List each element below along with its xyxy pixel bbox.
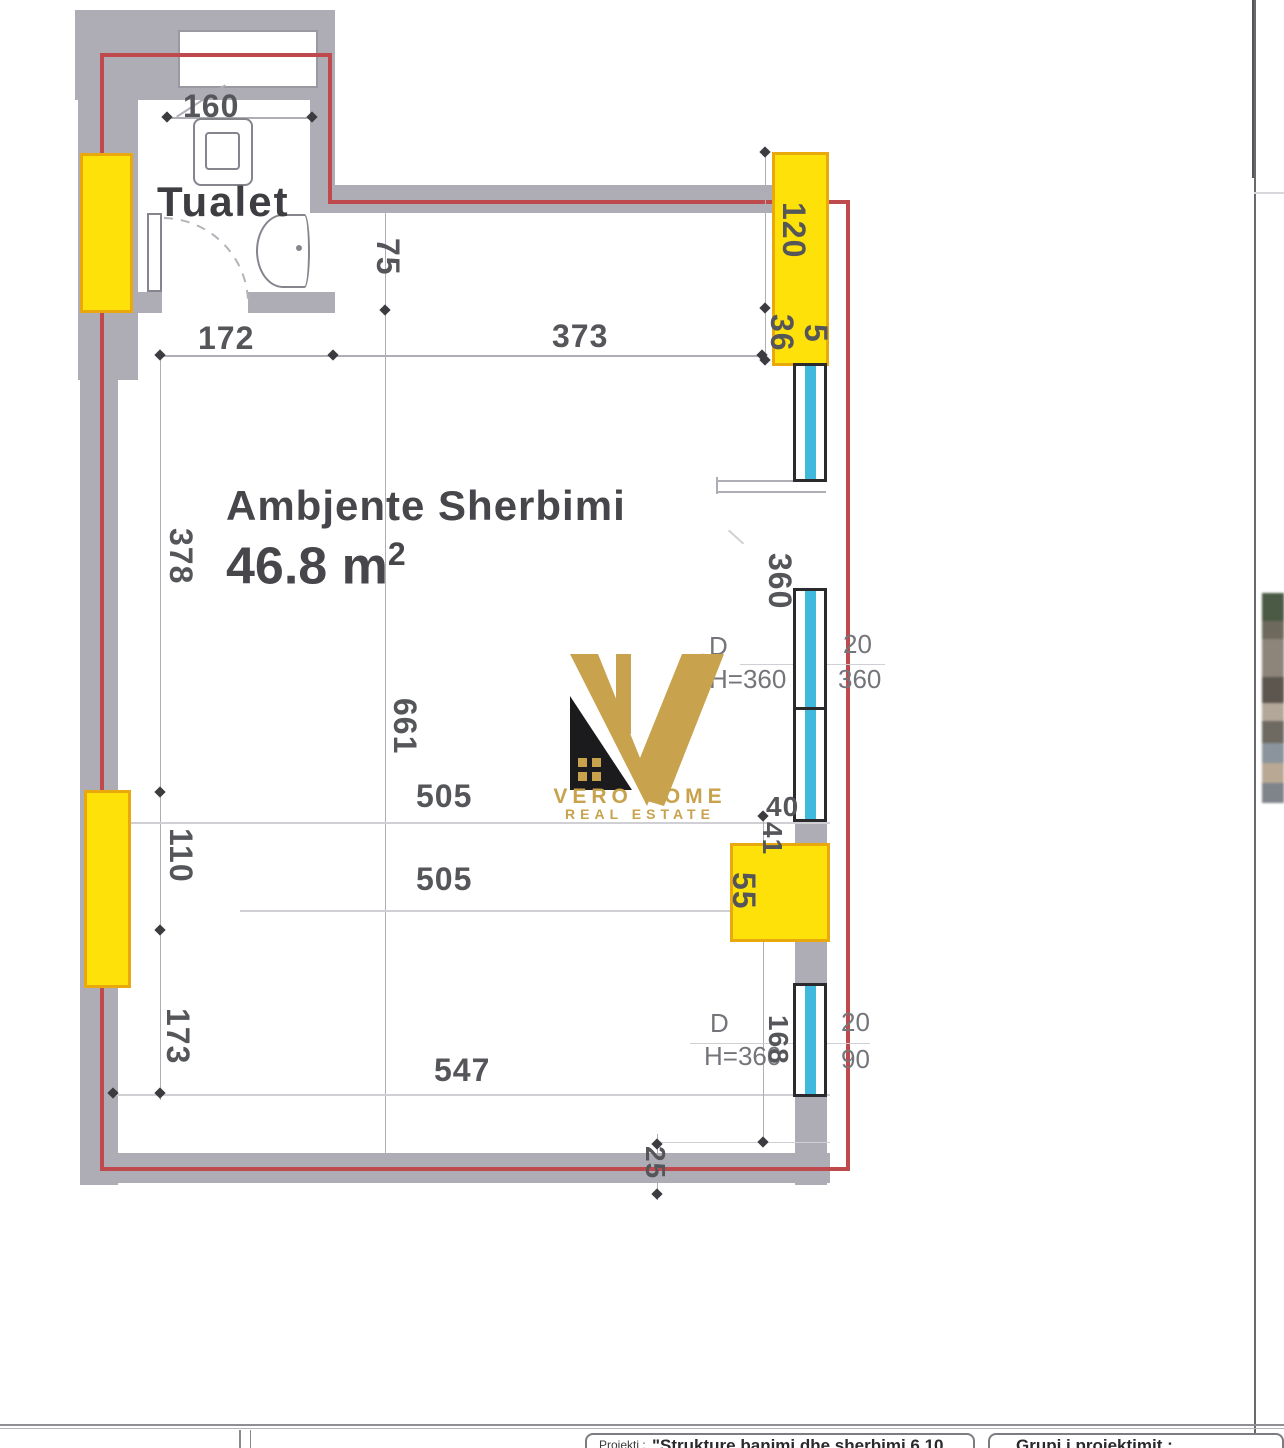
logo-line2: REAL ESTATE bbox=[540, 806, 740, 822]
dim-168: 168 bbox=[764, 1015, 792, 1065]
dim-110: 110 bbox=[165, 828, 197, 883]
dim-tick bbox=[759, 302, 770, 313]
grid-line-h-547 bbox=[113, 1094, 830, 1096]
dim-40: 40 bbox=[766, 793, 799, 821]
dim-373: 373 bbox=[552, 320, 608, 352]
dim-tick bbox=[651, 1188, 662, 1199]
dim-tick bbox=[154, 349, 165, 360]
window-1 bbox=[793, 363, 827, 482]
room-area: 46.8 m2 bbox=[226, 536, 406, 596]
titleblock-top-rule-2 bbox=[0, 1428, 1284, 1429]
page-divider-line bbox=[1254, 0, 1256, 1448]
dim-tick bbox=[154, 924, 165, 935]
red-line-bottom bbox=[100, 1167, 850, 1171]
adjacent-photo-sliver bbox=[1262, 593, 1284, 803]
door1-leaf-edge bbox=[716, 477, 718, 494]
bathroom-label: Tualet bbox=[157, 178, 290, 226]
titleblock-divider-left-2 bbox=[250, 1430, 251, 1448]
dim-90: 90 bbox=[841, 1046, 870, 1072]
dim-tick bbox=[154, 786, 165, 797]
dim-505-b: 505 bbox=[416, 863, 472, 895]
room-area-value: 46.8 m bbox=[226, 537, 388, 595]
titleblock-top-rule bbox=[0, 1424, 1284, 1426]
dim-120: 120 bbox=[778, 202, 810, 258]
dim-55: 55 bbox=[728, 872, 760, 910]
window-3 bbox=[793, 983, 827, 1097]
dim-505-a: 505 bbox=[416, 780, 472, 812]
grid-line-vertical-mid bbox=[385, 213, 386, 1153]
dim-tick bbox=[327, 349, 338, 360]
room-name: Ambjente Sherbimi bbox=[226, 482, 626, 530]
shaft-opening bbox=[178, 30, 318, 88]
door1-leaf-line-b bbox=[716, 491, 826, 493]
dim-378: 378 bbox=[165, 528, 197, 584]
door2-letter: D bbox=[710, 1010, 729, 1036]
titleblock-divider-left bbox=[239, 1430, 241, 1448]
dim-tick bbox=[379, 304, 390, 315]
room-area-exponent: 2 bbox=[388, 536, 406, 572]
dim-tick bbox=[759, 146, 770, 157]
sink-basin bbox=[205, 132, 240, 170]
dim-5: 5 bbox=[800, 324, 832, 343]
column-left-top bbox=[80, 153, 133, 313]
registered-mark-letter: R bbox=[698, 659, 708, 674]
wall-left-lower bbox=[80, 380, 118, 1185]
dim-36: 36 bbox=[766, 314, 798, 352]
red-line-top bbox=[100, 53, 332, 57]
window-2 bbox=[793, 588, 827, 822]
group-label: Grupi i projektimit : bbox=[1016, 1436, 1173, 1448]
dim-20-a: 20 bbox=[843, 631, 872, 657]
dim-41: 41 bbox=[758, 822, 786, 855]
dim-tick bbox=[154, 1087, 165, 1098]
window-glass bbox=[805, 986, 816, 1094]
toilet-flush-dot bbox=[296, 245, 302, 251]
red-line-step-v bbox=[328, 53, 332, 204]
grid-line-h-505a bbox=[118, 822, 830, 824]
page-edge-rule bbox=[1254, 192, 1284, 194]
dim-172: 172 bbox=[198, 322, 254, 354]
window-glass bbox=[805, 591, 816, 819]
floor-plan-scan: Tualet Ambjente Sherbimi 46.8 m2 160 172… bbox=[0, 0, 1284, 1448]
grid-line-h-25 bbox=[660, 1142, 830, 1143]
dim-75: 75 bbox=[372, 238, 404, 276]
dim-661: 661 bbox=[389, 698, 421, 754]
project-label: Projekti : bbox=[599, 1438, 646, 1448]
wall-right-b bbox=[795, 822, 827, 845]
dim-25: 25 bbox=[641, 1146, 669, 1179]
wall-top-horizontal bbox=[310, 185, 772, 213]
door1-swing-dash bbox=[728, 530, 744, 545]
dim-173: 173 bbox=[162, 1008, 194, 1064]
dim-160: 160 bbox=[183, 90, 239, 122]
logo-h-left-leg bbox=[616, 654, 631, 734]
dim-360-b: 360 bbox=[838, 666, 881, 692]
project-value: "Strukture banimi dhe sherbimi 6.10 bbox=[652, 1436, 943, 1448]
dim-tick bbox=[161, 111, 172, 122]
column-left-mid bbox=[84, 790, 131, 988]
dim-360-window: 360 bbox=[764, 553, 796, 609]
dim-20-b: 20 bbox=[841, 1009, 870, 1035]
dim-line-left-vertical bbox=[160, 355, 161, 1100]
window-mullion bbox=[796, 707, 824, 710]
dim-547: 547 bbox=[434, 1054, 490, 1086]
red-line-step-h bbox=[328, 200, 846, 204]
window-glass bbox=[805, 366, 816, 479]
dim-tick bbox=[757, 1136, 768, 1147]
wall-right-c bbox=[795, 942, 827, 985]
